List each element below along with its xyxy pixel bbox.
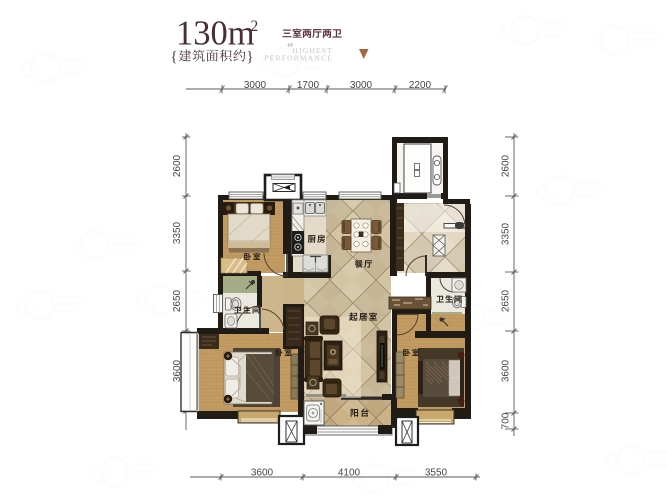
svg-text:PERFORMANCE: PERFORMANCE (264, 54, 333, 63)
svg-text:{: { (171, 49, 178, 65)
svg-text:130m: 130m (176, 15, 255, 53)
svg-text:2: 2 (251, 18, 259, 35)
svg-text:2600: 2600 (172, 154, 183, 177)
svg-text:4100: 4100 (338, 468, 361, 479)
svg-text:3550: 3550 (425, 468, 448, 479)
svg-text:1700: 1700 (297, 80, 320, 91)
svg-text:2200: 2200 (409, 80, 432, 91)
svg-text:3600: 3600 (251, 468, 274, 479)
svg-text:2650: 2650 (172, 289, 183, 312)
svg-text:700: 700 (501, 412, 512, 429)
svg-text:3000: 3000 (244, 80, 267, 91)
svg-text:3350: 3350 (501, 222, 512, 245)
svg-text:2600: 2600 (501, 154, 512, 177)
svg-text:3000: 3000 (350, 80, 373, 91)
svg-text:2650: 2650 (501, 289, 512, 312)
svg-text:3600: 3600 (501, 359, 512, 382)
svg-text:}: } (247, 49, 254, 65)
svg-text:3350: 3350 (172, 221, 183, 244)
svg-text:“: “ (287, 39, 294, 54)
